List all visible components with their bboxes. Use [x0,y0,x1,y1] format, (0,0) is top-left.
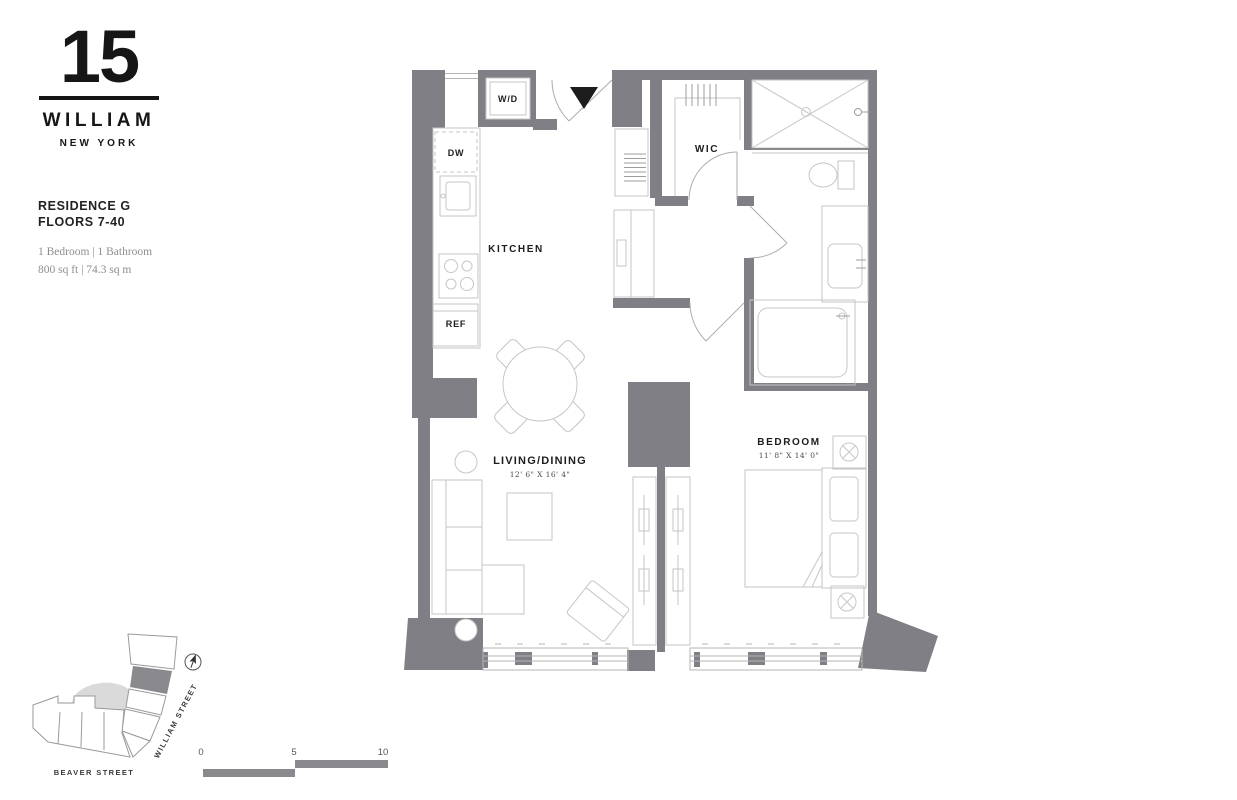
label-bedroom-dims: 11' 8" X 14' 0" [759,451,820,460]
dining-set [493,338,587,436]
scale-tick-5: 5 [291,747,296,758]
nightstand-top [833,436,866,469]
nightstand-bottom [831,586,864,618]
tower-outline [128,634,177,669]
scale-tick-10: 10 [378,747,389,758]
living-closet [633,477,656,645]
label-living-dining: LIVING/DINING [493,455,587,467]
shower [752,80,868,148]
label-wic: WIC [695,144,719,155]
bed [745,468,866,588]
toilet [809,161,854,189]
label-washer-dryer: W/D [498,94,518,104]
site-map: WILLIAM STREET BEAVER STREET [33,634,201,777]
armchair [566,580,630,643]
label-dishwasher: DW [448,148,465,158]
vanity-sink [822,206,868,302]
label-beaver-street: BEAVER STREET [54,768,135,777]
compass-icon [185,653,201,670]
scale-bar: 0 5 10 [198,747,388,777]
unit-highlight [130,666,172,694]
kitchen-counter [433,128,480,348]
label-living-dining-dims: 12' 6" X 16' 4" [510,470,571,479]
coffee-table [507,493,552,540]
label-william-street: WILLIAM STREET [152,682,199,760]
label-kitchen: KITCHEN [488,244,544,255]
side-table-top [455,451,477,473]
bedroom-closet [666,477,690,645]
dining-table [503,347,577,421]
floor-plan-canvas: W/D DW REF KITCHEN WIC LIVING/DINING 12'… [0,0,1237,800]
kitchen-sink [440,176,476,216]
bathroom-fixtures [750,80,868,385]
label-refrigerator: REF [446,319,466,329]
hall-pantry-cabinet [614,210,654,297]
sofa [432,480,524,614]
bathtub [750,300,855,385]
wic-closet [675,84,740,196]
scale-tick-0: 0 [198,747,203,758]
cooktop [439,254,478,298]
coat-closet [615,129,648,196]
side-table-bottom [455,619,477,641]
label-bedroom: BEDROOM [757,437,820,448]
scale-bar-segment-low [203,769,295,777]
scale-bar-segment-high [295,760,388,768]
